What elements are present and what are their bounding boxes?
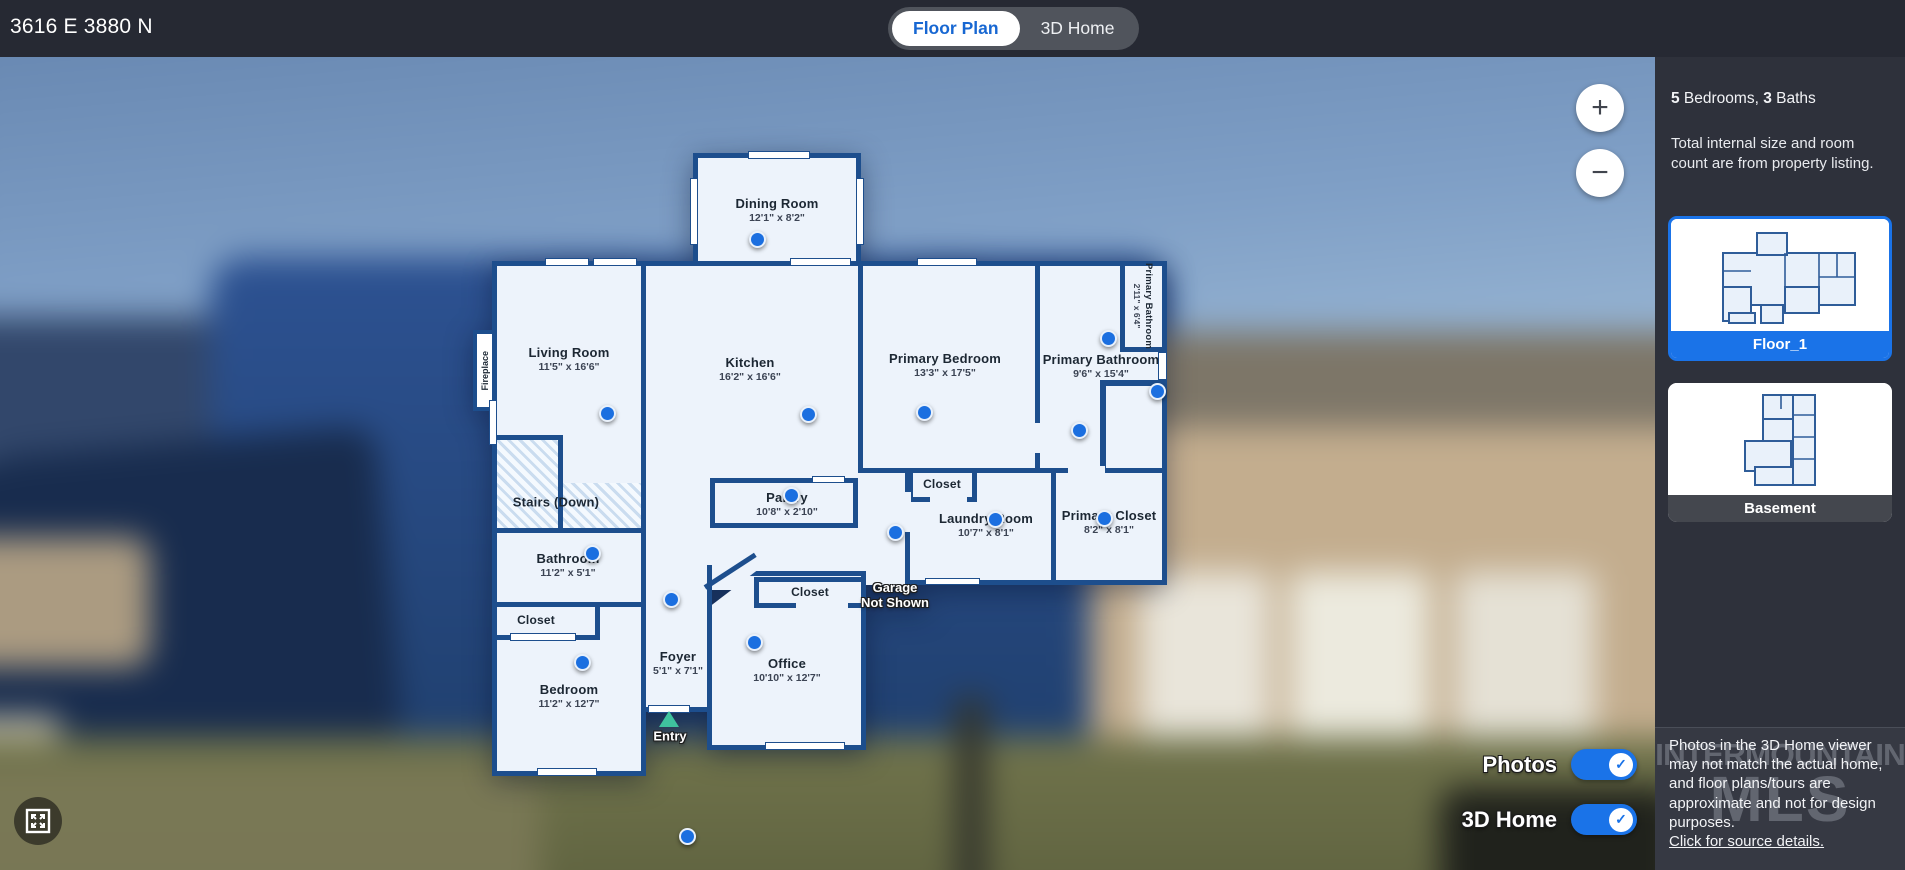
photo-marker[interactable] — [599, 405, 616, 422]
window — [925, 578, 980, 585]
fireplace-label: Fireplace — [480, 351, 490, 391]
photo-marker[interactable] — [800, 406, 817, 423]
floor1-thumbnail — [1671, 219, 1889, 331]
room-label-office: Office10'10" x 12'7" — [753, 656, 821, 684]
fireplace-tag: Fireplace — [473, 330, 496, 411]
photo-marker[interactable] — [783, 487, 800, 504]
door-opening — [1068, 466, 1105, 474]
floor1-label: Floor_1 — [1671, 331, 1889, 358]
photo-marker[interactable] — [584, 545, 601, 562]
window — [545, 258, 589, 266]
listing-note: Total internal size and room count are f… — [1671, 134, 1889, 174]
floor1-mini-plan — [1685, 225, 1875, 325]
entry-arrow-icon — [659, 711, 679, 727]
window — [489, 400, 497, 445]
room-label-closet-office: Closet — [791, 585, 829, 599]
entry-label: Entry — [653, 729, 686, 744]
room-label-bedroom: Bedroom11'2" x 12'7" — [538, 682, 599, 710]
photo-marker[interactable] — [1100, 330, 1117, 347]
beds-baths-summary: 5 Bedrooms, 3 Baths — [1671, 90, 1816, 108]
door-opening — [510, 633, 576, 641]
photo-marker[interactable] — [663, 591, 680, 608]
room-label-dining: Dining Room12'1" x 8'2" — [735, 196, 818, 224]
door-opening — [930, 495, 967, 503]
photo-marker[interactable] — [679, 828, 696, 845]
door-opening — [903, 492, 911, 532]
window — [748, 151, 810, 159]
photo-marker[interactable] — [887, 524, 904, 541]
zoom-out-button[interactable]: − — [1576, 149, 1624, 197]
basement-label: Basement — [1668, 495, 1892, 522]
window — [812, 476, 845, 483]
floor-plan: Fireplace Dining Room12'1" x 8'2" Living… — [492, 153, 1170, 783]
door-opening — [1035, 423, 1041, 453]
photo-marker[interactable] — [1071, 422, 1088, 439]
room-label-primary-bedroom: Primary Bedroom13'3" x 17'5" — [889, 351, 1001, 379]
window — [1158, 352, 1167, 380]
3d-home-toggle[interactable]: ✓ — [1571, 804, 1637, 835]
disclaimer-text: Photos in the 3D Home viewer may not mat… — [1669, 736, 1893, 851]
stairs-area — [492, 435, 563, 533]
window — [537, 768, 597, 776]
window — [690, 178, 698, 245]
room-label-primary-bathroom: Primary Bathroom9'6" x 15'4" — [1043, 352, 1160, 380]
room-label-primary-bath-small: Primary Bathroom 2'11" x 6'4" — [1132, 263, 1154, 349]
top-bar: 3616 E 3880 N Floor Plan 3D Home — [0, 0, 1905, 57]
room-label-living: Living Room11'5" x 16'6" — [529, 345, 610, 373]
window — [593, 258, 637, 266]
photos-toggle[interactable]: ✓ — [1571, 749, 1637, 780]
check-icon: ✓ — [1615, 756, 1627, 773]
room-label-closet-left: Closet — [517, 613, 555, 627]
plus-icon: + — [1591, 93, 1609, 123]
basement-thumbnail — [1668, 383, 1892, 495]
tab-floor-plan[interactable]: Floor Plan — [892, 11, 1020, 46]
garage-not-shown-label: Garage Not Shown — [861, 580, 929, 610]
disclaimer-panel: INTERMOUNTAIN MLS Photos in the 3D Home … — [1655, 727, 1905, 870]
floorplan-viewport[interactable]: Fireplace Dining Room12'1" x 8'2" Living… — [0, 57, 1655, 870]
photo-marker[interactable] — [987, 511, 1004, 528]
photo-marker[interactable] — [1149, 383, 1166, 400]
window — [765, 742, 845, 750]
room-kitchen — [641, 261, 866, 590]
source-details-link[interactable]: Click for source details. — [1669, 833, 1824, 850]
floor-selector-basement[interactable]: Basement — [1668, 383, 1892, 522]
photo-marker[interactable] — [746, 634, 763, 651]
toilet-room-wall — [1100, 380, 1106, 473]
check-icon: ✓ — [1615, 811, 1627, 828]
photos-toggle-row: Photos ✓ — [1482, 749, 1637, 780]
address-title: 3616 E 3880 N — [10, 15, 153, 39]
photo-marker[interactable] — [916, 404, 933, 421]
3d-home-toggle-row: 3D Home ✓ — [1462, 804, 1637, 835]
photos-toggle-label: Photos — [1482, 752, 1557, 778]
floor-selector-floor1[interactable]: Floor_1 — [1668, 216, 1892, 361]
basement-mini-plan — [1685, 389, 1875, 489]
minus-icon: − — [1591, 158, 1609, 188]
room-foyer — [641, 565, 712, 712]
window — [790, 258, 851, 266]
door-opening — [796, 603, 848, 610]
view-toggle: Floor Plan 3D Home — [888, 7, 1139, 50]
zoom-in-button[interactable]: + — [1576, 84, 1624, 132]
fullscreen-button[interactable] — [14, 797, 62, 845]
room-label-kitchen: Kitchen16'2" x 16'6" — [719, 355, 781, 383]
room-label-foyer: Foyer5'1" x 7'1" — [653, 649, 703, 677]
sidebar: 5 Bedrooms, 3 Baths Total internal size … — [1655, 57, 1905, 870]
living-room-extension — [563, 433, 641, 483]
room-label-closet-mid: Closet — [923, 477, 961, 491]
photo-marker[interactable] — [749, 231, 766, 248]
3d-home-toggle-label: 3D Home — [1462, 807, 1557, 833]
stairs-label: Stairs (Down) — [513, 495, 599, 510]
photo-marker[interactable] — [1096, 510, 1113, 527]
room-label-laundry: Laundry Room10'7" x 8'1" — [939, 511, 1033, 539]
window — [856, 178, 864, 245]
tab-3d-home[interactable]: 3D Home — [1020, 11, 1136, 46]
fullscreen-expand-icon — [25, 808, 51, 834]
window — [917, 258, 977, 266]
photo-marker[interactable] — [574, 654, 591, 671]
